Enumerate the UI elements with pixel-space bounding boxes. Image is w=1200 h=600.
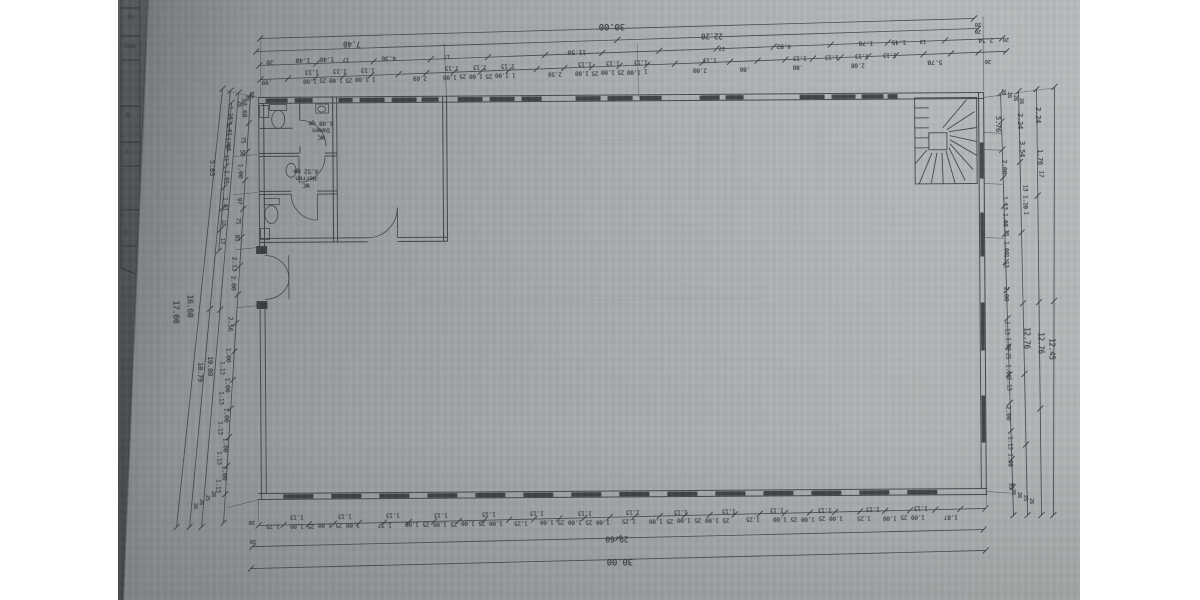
floor-plan-photo	[0, 0, 1200, 600]
screenshot-root: 30.007.4022.202020201.481.40174.361711.5…	[0, 0, 1200, 600]
